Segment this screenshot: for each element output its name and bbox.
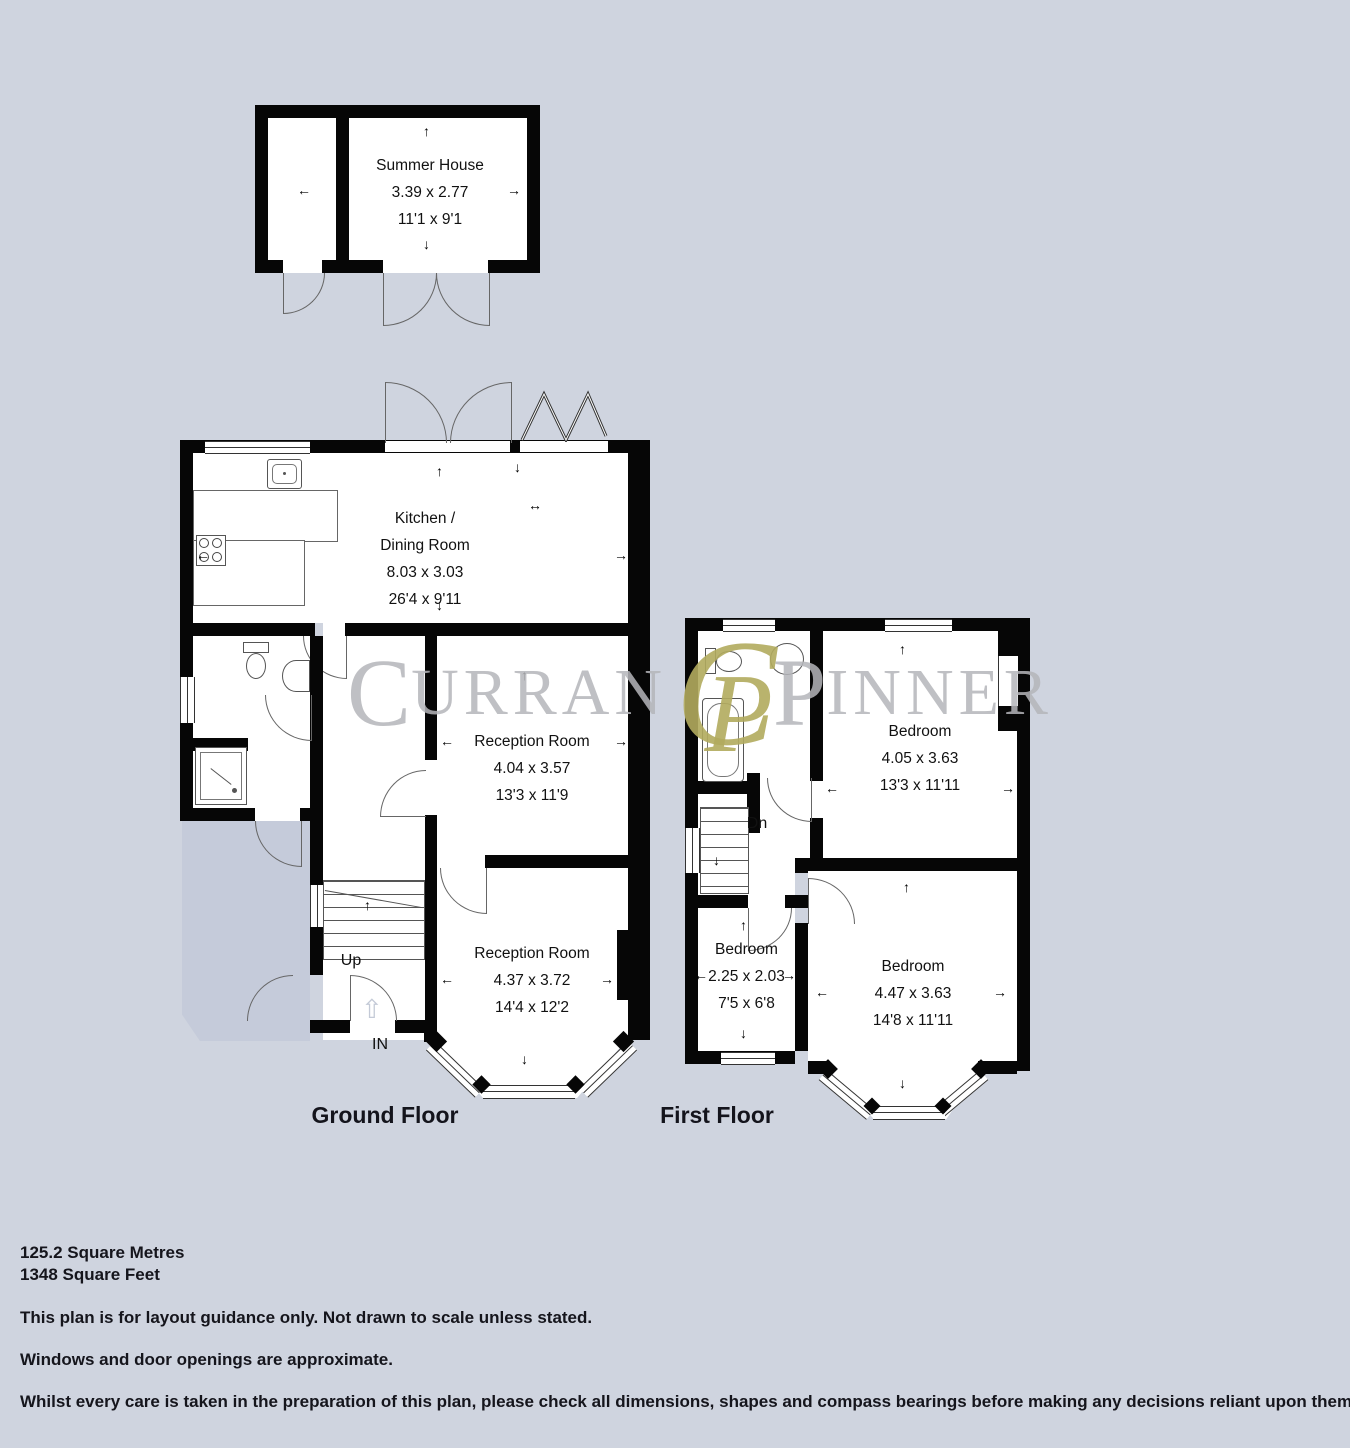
- disclaimer-care: Whilst every care is taken in the prepar…: [20, 1392, 1350, 1412]
- dimension-arrow-icon: ↑: [436, 464, 443, 478]
- dimension-arrow-icon: ↑: [364, 898, 371, 912]
- entrance-label: IN: [355, 1036, 405, 1054]
- wall: [180, 808, 255, 821]
- room-name: Reception Room: [452, 940, 612, 967]
- window: [885, 619, 952, 632]
- dimension-arrow-icon: ↓: [423, 237, 430, 251]
- kitchen-sink-drain: [283, 472, 286, 475]
- dimension-arrow-icon: →: [507, 183, 521, 197]
- room-label-bedroom1: Bedroom 4.05 x 3.63 13'3 x 11'11: [840, 718, 1000, 799]
- first-floor-plan: ↓ Dn Bedroom 4.05 x 3.63 13'3 x 11'11 ↑ …: [685, 618, 1030, 1138]
- door-opening: [383, 260, 488, 273]
- wall: [485, 855, 628, 868]
- dimension-arrow-icon: ↑: [740, 918, 747, 932]
- dimension-arrow-icon: ←: [694, 968, 708, 982]
- wall: [698, 781, 753, 794]
- total-area-imperial: 1348 Square Feet: [20, 1265, 160, 1285]
- kitchen-sink: [267, 459, 302, 489]
- room-name: Reception Room: [452, 728, 612, 755]
- room-dim-imperial: 13'3 x 11'11: [840, 772, 1000, 799]
- dimension-arrow-icon: →: [1001, 781, 1015, 795]
- room-dim-metric: 4.47 x 3.63: [828, 980, 998, 1007]
- entrance-arrow-icon: ⇧: [361, 996, 383, 1022]
- dimension-arrow-icon: ↓: [514, 460, 521, 474]
- door-arc: [436, 273, 490, 326]
- wall: [310, 1020, 350, 1033]
- wall: [527, 105, 540, 273]
- dimension-arrow-icon: ↑: [423, 124, 430, 138]
- room-label-bedroom2: Bedroom 2.25 x 2.03 7'5 x 6'8: [698, 936, 795, 1017]
- total-area-metric: 125.2 Square Metres: [20, 1243, 184, 1263]
- room-name: Kitchen /: [340, 505, 510, 532]
- dimension-arrow-icon: ↓: [521, 1052, 528, 1066]
- bifold-door: [520, 390, 608, 442]
- toilet: [243, 642, 269, 653]
- room-dim-metric: 4.05 x 3.63: [840, 745, 1000, 772]
- wall: [698, 895, 748, 908]
- shower-drain: [232, 788, 237, 793]
- window: [205, 441, 310, 454]
- chimney-breast: [617, 930, 628, 1000]
- toilet: [705, 648, 716, 674]
- dimension-arrow-icon: ←: [815, 985, 829, 999]
- stairs-label: Up: [326, 952, 376, 970]
- ground-floor-label: Ground Floor: [300, 1102, 470, 1129]
- wall: [795, 858, 808, 873]
- disclaimer-scale: This plan is for layout guidance only. N…: [20, 1308, 592, 1328]
- wall: [310, 927, 323, 975]
- room-dim-metric: 2.25 x 2.03: [698, 963, 795, 990]
- dimension-arrow-icon: →: [614, 548, 628, 562]
- room-name: Bedroom: [698, 936, 795, 963]
- room-dim-imperial: 14'4 x 12'2: [452, 994, 612, 1021]
- chimney-breast: [998, 631, 1017, 656]
- bay-window-front: [873, 1106, 945, 1120]
- room-dim-imperial: 11'1 x 9'1: [340, 206, 520, 233]
- toilet-bowl: [716, 651, 742, 672]
- dimension-arrow-icon: ←: [825, 781, 839, 795]
- hob-ring-icon: [212, 552, 222, 562]
- room-dim-imperial: 13'3 x 11'9: [452, 782, 612, 809]
- dimension-arrow-icon: ↑: [903, 880, 910, 894]
- bath: [702, 698, 744, 782]
- stairs-label: Dn: [737, 815, 777, 833]
- door-arc: [383, 273, 437, 326]
- wall: [425, 815, 437, 1040]
- room-name: Bedroom: [840, 718, 1000, 745]
- alcove: [998, 656, 1018, 706]
- dimension-arrow-icon: ←: [196, 548, 210, 562]
- window: [721, 1052, 775, 1065]
- chimney-breast: [998, 706, 1017, 731]
- dimension-arrow-icon: →: [782, 968, 796, 982]
- disclaimer-openings: Windows and door openings are approximat…: [20, 1350, 393, 1370]
- dimension-arrow-icon: ←: [440, 972, 454, 986]
- room-dim-imperial: 7'5 x 6'8: [698, 990, 795, 1017]
- dimension-arrow-icon: →: [600, 972, 614, 986]
- dimension-arrow-icon: ↓: [899, 1076, 906, 1090]
- room-label-kitchen: Kitchen / Dining Room 8.03 x 3.03 26'4 x…: [340, 505, 510, 613]
- dimension-arrow-icon: ←: [297, 183, 311, 197]
- wall: [810, 818, 823, 858]
- sink: [770, 643, 804, 675]
- first-floor-label: First Floor: [652, 1102, 782, 1129]
- room-dim-imperial: 14'8 x 11'11: [828, 1007, 998, 1034]
- wall: [1017, 871, 1030, 1071]
- bay-window-front: [483, 1085, 575, 1099]
- room-label-reception1: Reception Room 4.04 x 3.57 13'3 x 11'9: [452, 728, 612, 809]
- dimension-arrow-icon: ↓: [436, 598, 443, 612]
- ground-floor-plan: ⇧ IN ↑ Up Kitchen / Dining Room 8.03 x 3…: [180, 440, 650, 1140]
- room-dim-metric: 4.04 x 3.57: [452, 755, 612, 782]
- wall: [628, 440, 650, 1040]
- dimension-arrow-icon: ↔: [528, 498, 542, 512]
- dimension-arrow-icon: ↓: [713, 853, 720, 867]
- room-dim-metric: 4.37 x 3.72: [452, 967, 612, 994]
- wall: [795, 923, 808, 1051]
- wall: [425, 636, 437, 760]
- window: [180, 677, 195, 723]
- wall: [785, 895, 808, 908]
- room-label-summer-house: Summer House 3.39 x 2.77 11'1 x 9'1: [340, 152, 520, 233]
- dimension-arrow-icon: ↓: [740, 1026, 747, 1040]
- wall: [255, 105, 540, 118]
- room-dim-metric: 3.39 x 2.77: [340, 179, 520, 206]
- room-dim-imperial: 26'4 x 9'11: [340, 586, 510, 613]
- dimension-arrow-icon: →: [614, 734, 628, 748]
- toilet-bowl: [246, 653, 266, 679]
- room-name: Summer House: [340, 152, 520, 179]
- sink: [282, 660, 310, 692]
- door-opening: [283, 260, 322, 273]
- dimension-arrow-icon: ↑: [899, 642, 906, 656]
- hob-ring-icon: [212, 538, 222, 548]
- wall: [345, 623, 628, 636]
- wall: [310, 751, 323, 885]
- door-arc: [450, 382, 512, 443]
- summer-house-plan: Summer House 3.39 x 2.77 11'1 x 9'1 ↑ ↓ …: [255, 105, 540, 273]
- room-name: Dining Room: [340, 532, 510, 559]
- door-opening: [520, 441, 608, 452]
- wall: [810, 631, 823, 781]
- wall: [255, 105, 268, 273]
- dimension-arrow-icon: →: [993, 985, 1007, 999]
- dimension-arrow-icon: ←: [440, 734, 454, 748]
- room-label-reception2: Reception Room 4.37 x 3.72 14'4 x 12'2: [452, 940, 612, 1021]
- window: [685, 828, 700, 873]
- wall: [424, 1020, 437, 1042]
- door-arc: [385, 382, 447, 443]
- door-arc: [283, 273, 325, 314]
- dimension-arrow-icon: ↑: [521, 668, 528, 682]
- room-name: Bedroom: [828, 953, 998, 980]
- wall: [1017, 618, 1030, 871]
- window: [723, 619, 775, 632]
- wall: [795, 858, 1030, 871]
- room-label-bedroom3: Bedroom 4.47 x 3.63 14'8 x 11'11: [828, 953, 998, 1034]
- room-dim-metric: 8.03 x 3.03: [340, 559, 510, 586]
- shower: [195, 747, 247, 805]
- bath-inner: [707, 703, 739, 777]
- wall: [180, 623, 315, 636]
